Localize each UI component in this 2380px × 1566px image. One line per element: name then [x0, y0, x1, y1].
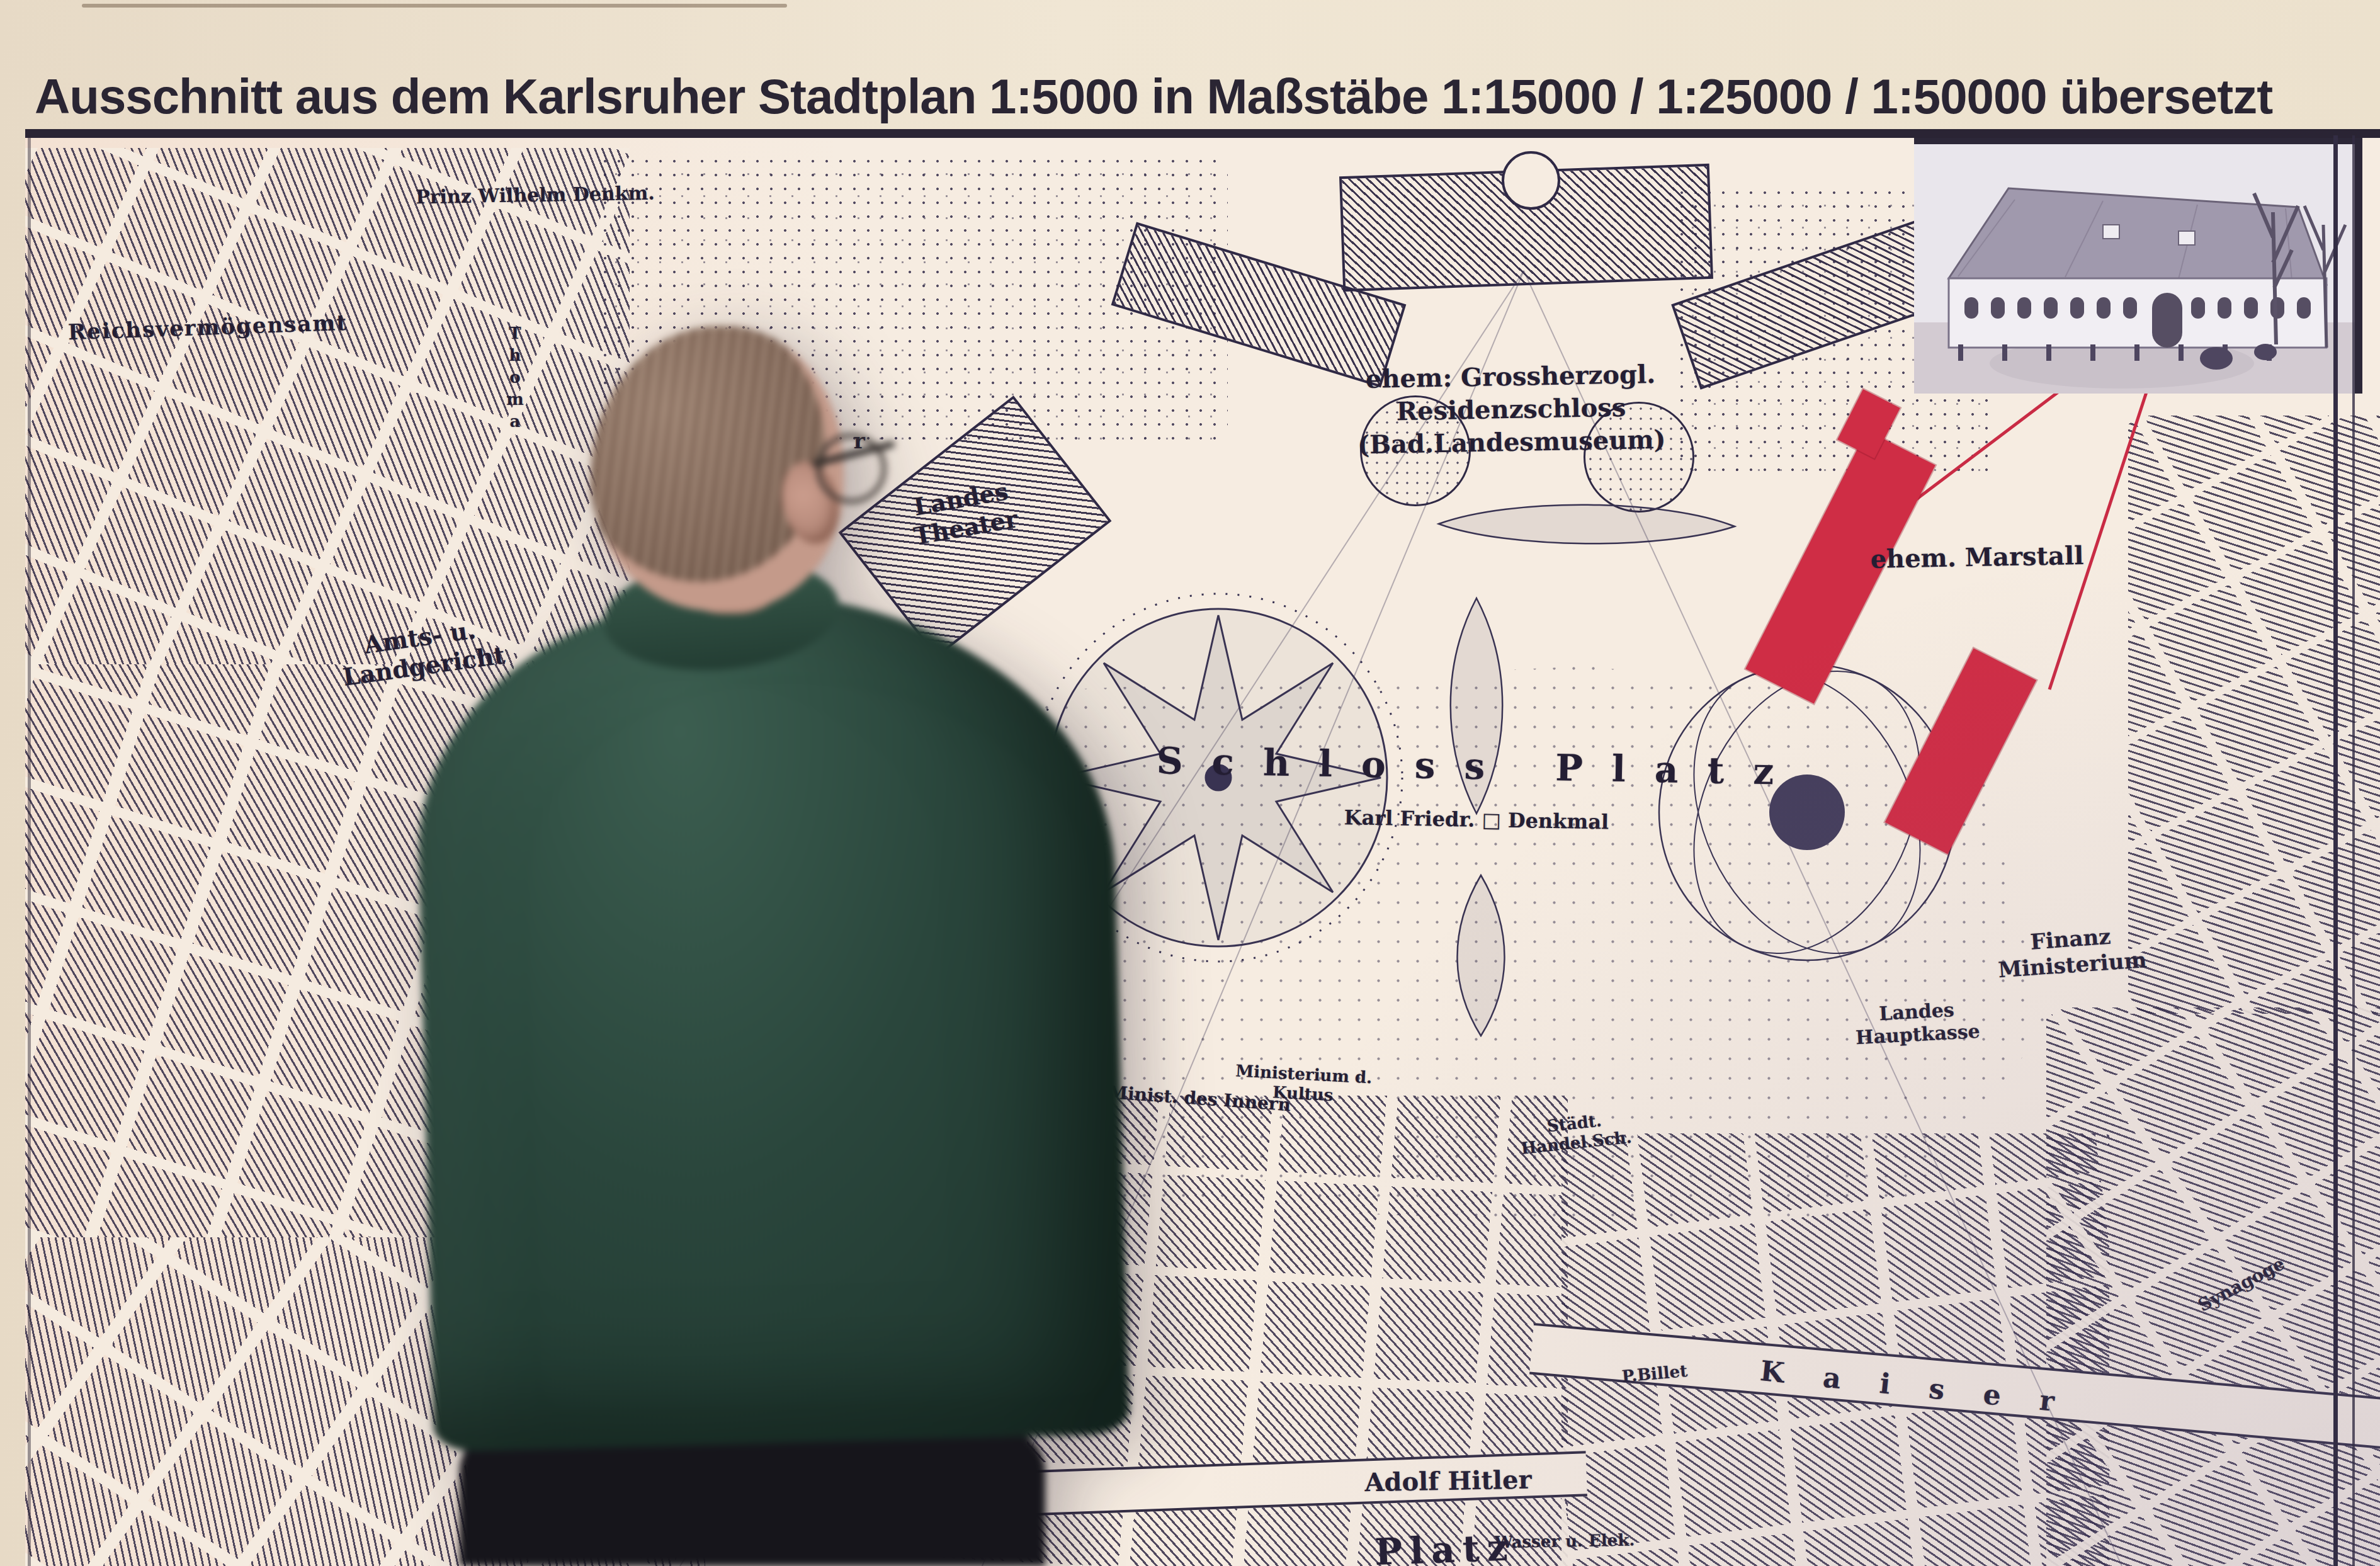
map-right-edge	[2333, 135, 2338, 1566]
exhibition-photo: Ausschnitt aus dem Karlsruher Stadtplan …	[0, 0, 2380, 1566]
person-viewing-map	[378, 315, 1165, 1566]
glasses-rim	[816, 433, 887, 504]
person-sweater	[412, 584, 1130, 1452]
bush	[2200, 347, 2233, 370]
map-left-edge	[28, 135, 31, 1566]
wall-frame-line	[82, 4, 787, 8]
photo-cool-tint	[1184, 496, 2380, 1566]
bush	[2254, 344, 2277, 360]
map-label-residenzschloss: ehem: Grossherzogl. Residenzschloss (Bad…	[1356, 358, 1666, 462]
map-top-border	[25, 129, 2380, 138]
marstall-photo-inset	[1914, 137, 2362, 394]
building-facade	[1949, 278, 2326, 348]
map-right-edge-outer	[2352, 135, 2355, 1566]
map-label-prinz-wilhelm-denkmal: Prinz Wilhelm Denkm.	[416, 182, 655, 209]
portal-arch	[2152, 293, 2182, 348]
panel-title: Ausschnitt aus dem Karlsruher Stadtplan …	[35, 68, 2364, 131]
